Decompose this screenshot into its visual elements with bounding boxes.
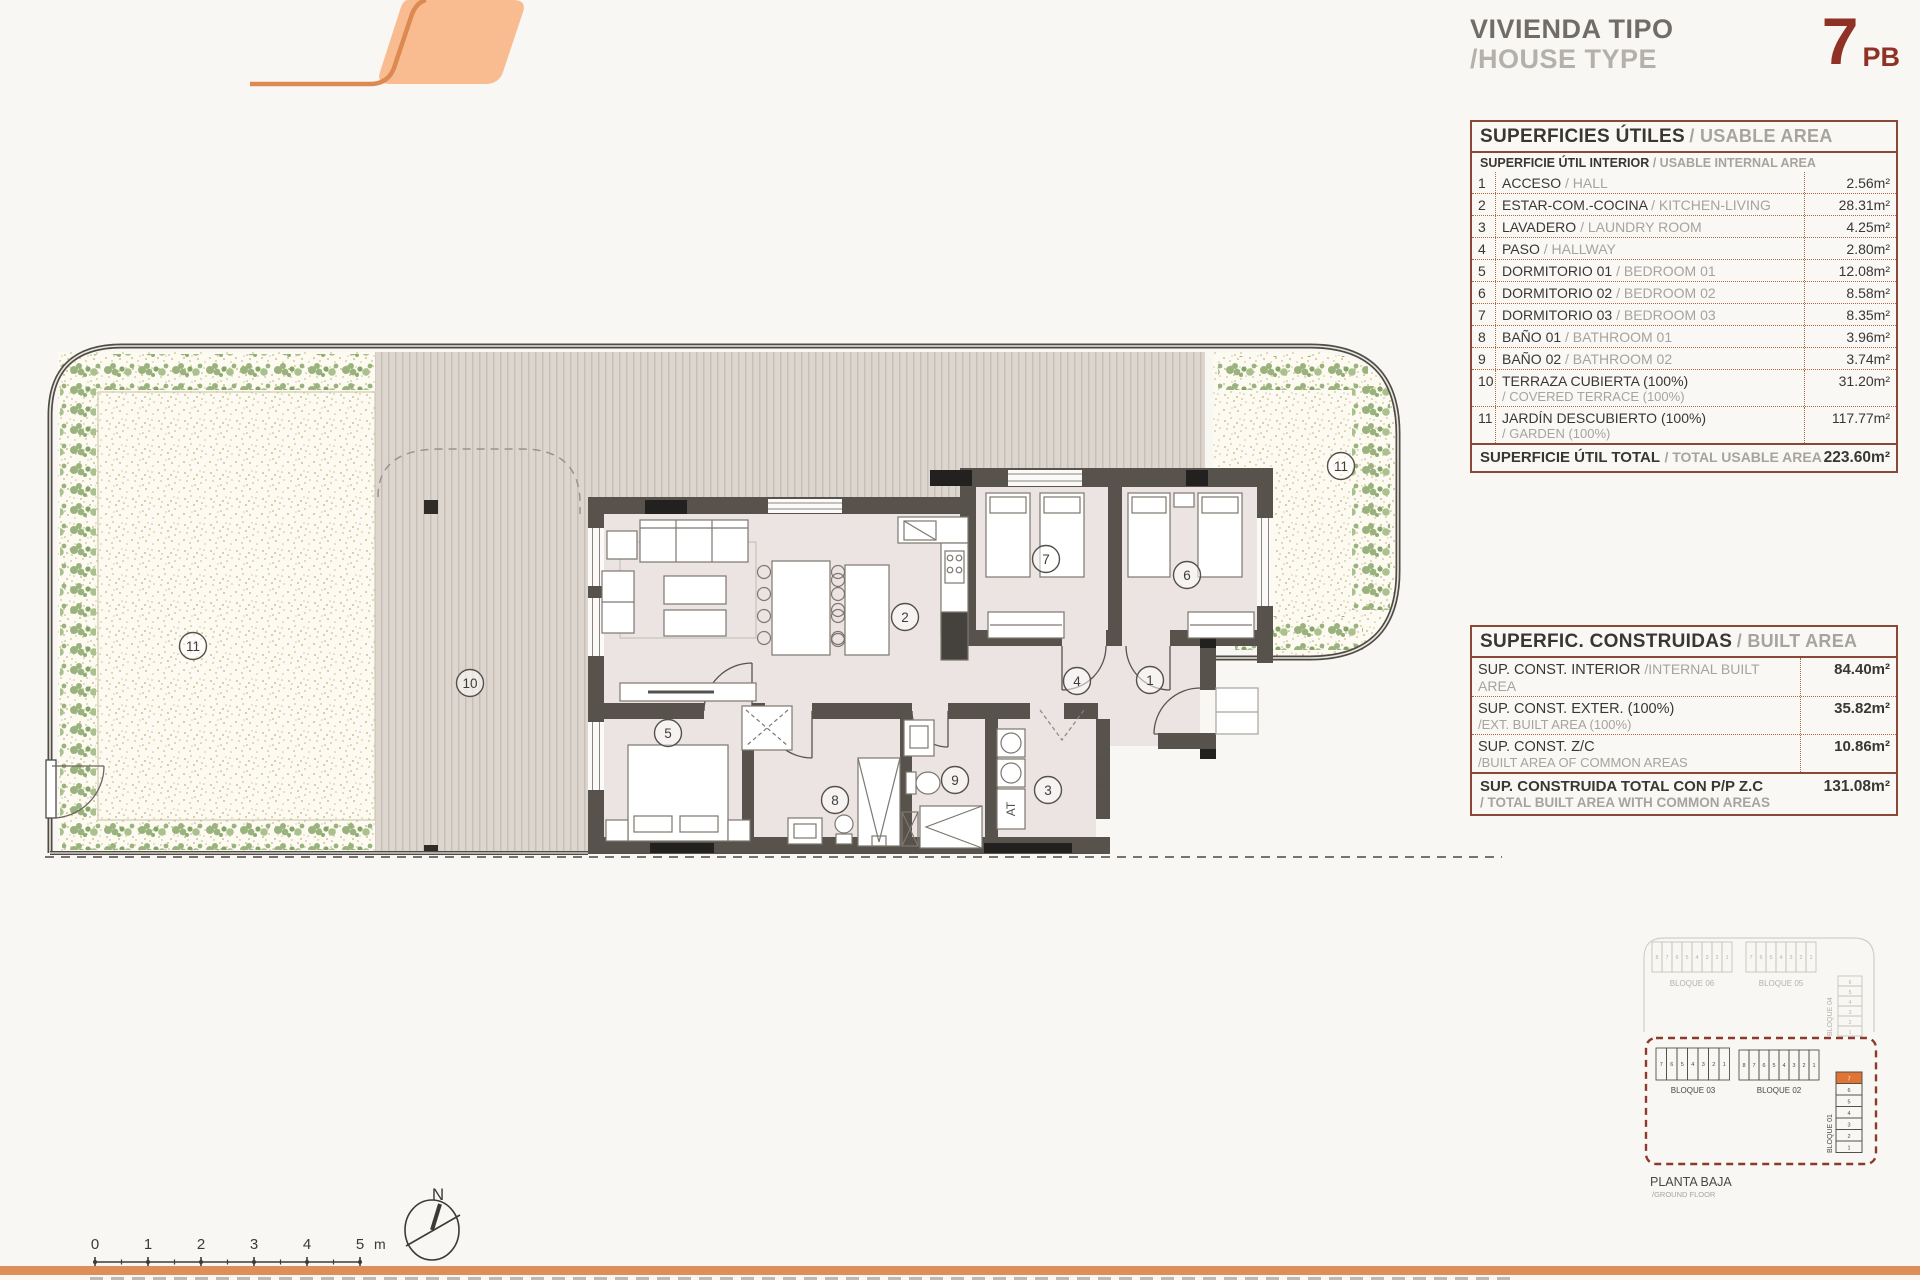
svg-text:4: 4 bbox=[303, 1236, 311, 1253]
svg-text:6: 6 bbox=[1675, 955, 1678, 961]
pillow bbox=[1202, 497, 1238, 513]
plan-sheet: AT 123456789101111 012345m N VIVIENDA TI… bbox=[0, 0, 1920, 1280]
svg-text:2: 2 bbox=[1715, 955, 1718, 961]
usable-row-7: 7DORMITORIO 03 / BEDROOM 038.35m² bbox=[1472, 304, 1896, 326]
svg-text:5: 5 bbox=[1772, 1063, 1775, 1069]
usable-row-5: 5DORMITORIO 01 / BEDROOM 0112.08m² bbox=[1472, 260, 1896, 282]
svg-text:4: 4 bbox=[1849, 1000, 1852, 1006]
coffee-table bbox=[664, 576, 726, 604]
svg-text:m: m bbox=[374, 1236, 386, 1252]
svg-text:6: 6 bbox=[1762, 1063, 1765, 1069]
svg-text:2: 2 bbox=[1712, 1062, 1715, 1068]
usable-row-11: 11JARDÍN DESCUBIERTO (100%)/ GARDEN (100… bbox=[1472, 407, 1896, 443]
svg-text:7: 7 bbox=[1042, 552, 1050, 567]
usable-subtitle-en: / USABLE INTERNAL AREA bbox=[1653, 156, 1816, 170]
svg-text:4: 4 bbox=[1691, 1062, 1694, 1068]
usable-area-table: SUPERFICIES ÚTILES / USABLE AREA SUPERFI… bbox=[1470, 120, 1898, 473]
sofa bbox=[640, 520, 748, 562]
built-total-label-en: / TOTAL BUILT AREA WITH COMMON AREAS bbox=[1480, 795, 1770, 810]
built-area-table-title: SUPERFIC. CONSTRUIDAS / BUILT AREA bbox=[1472, 627, 1896, 658]
toilet bbox=[916, 772, 940, 794]
svg-text:0: 0 bbox=[91, 1236, 99, 1253]
svg-text:BLOQUE 01: BLOQUE 01 bbox=[1827, 1114, 1834, 1153]
svg-text:4: 4 bbox=[1847, 1111, 1850, 1117]
toilet-tank bbox=[906, 772, 916, 794]
svg-text:2: 2 bbox=[1802, 1063, 1805, 1069]
svg-text:3: 3 bbox=[1792, 1063, 1795, 1069]
kitchen-island bbox=[845, 565, 889, 655]
svg-text:BLOQUE 04: BLOQUE 04 bbox=[1827, 997, 1834, 1036]
svg-text:5: 5 bbox=[1849, 990, 1852, 996]
built-area-table: SUPERFIC. CONSTRUIDAS / BUILT AREA SUP. … bbox=[1470, 625, 1898, 816]
coffee-table bbox=[664, 610, 726, 636]
built-row-2: SUP. CONST. Z/C/BUILT AREA OF COMMON ARE… bbox=[1472, 735, 1896, 772]
toilet bbox=[835, 815, 853, 833]
built-area-rows: SUP. CONST. INTERIOR /INTERNAL BUILT ARE… bbox=[1472, 658, 1896, 772]
room-label-4: 4 bbox=[1064, 668, 1091, 695]
garden-left bbox=[58, 352, 375, 853]
usable-row-9: 9BAÑO 02 / BATHROOM 023.74m² bbox=[1472, 348, 1896, 370]
room-label-1: 1 bbox=[1137, 667, 1164, 694]
nightstand bbox=[1174, 493, 1194, 507]
house-type-title-es: VIVIENDA TIPO bbox=[1470, 14, 1674, 44]
svg-text:/GROUND FLOOR: /GROUND FLOOR bbox=[1652, 1190, 1716, 1199]
usable-row-10: 10TERRAZA CUBIERTA (100%)/ COVERED TERRA… bbox=[1472, 370, 1896, 407]
svg-text:3: 3 bbox=[1789, 955, 1792, 961]
room-label-9: 9 bbox=[942, 767, 969, 794]
room-label-6: 6 bbox=[1174, 562, 1201, 589]
pillow bbox=[634, 816, 672, 832]
scale-bar: 012345m bbox=[91, 1236, 386, 1267]
svg-text:9: 9 bbox=[951, 773, 959, 788]
svg-text:5: 5 bbox=[1685, 955, 1688, 961]
built-total-value: 131.08m² bbox=[1824, 778, 1890, 810]
svg-text:8: 8 bbox=[1742, 1063, 1745, 1069]
dining-table bbox=[772, 561, 830, 655]
room-label-11: 11 bbox=[1328, 453, 1355, 480]
built-title-es: SUPERFIC. CONSTRUIDAS bbox=[1480, 631, 1732, 652]
svg-text:7: 7 bbox=[1847, 1077, 1850, 1083]
usable-total-value: 223.60m² bbox=[1824, 449, 1890, 467]
pillow bbox=[1132, 497, 1166, 513]
shrub-border-left bbox=[60, 358, 96, 840]
svg-text:4: 4 bbox=[1779, 955, 1782, 961]
room-label-11: 11 bbox=[180, 633, 207, 660]
svg-text:7: 7 bbox=[1660, 1062, 1663, 1068]
svg-text:8: 8 bbox=[1655, 955, 1658, 961]
svg-text:5: 5 bbox=[356, 1236, 364, 1253]
room-label-7: 7 bbox=[1033, 546, 1060, 573]
unit-number: 7 PB bbox=[1822, 8, 1900, 74]
usable-row-4: 4PASO / HALLWAY2.80m² bbox=[1472, 238, 1896, 260]
svg-text:6: 6 bbox=[1759, 955, 1762, 961]
usable-total-label-en: / TOTAL USABLE AREA bbox=[1664, 449, 1821, 465]
unit-number-value: 7 bbox=[1822, 8, 1859, 74]
usable-area-table-title: SUPERFICIES ÚTILES / USABLE AREA bbox=[1472, 122, 1896, 153]
shower bbox=[858, 758, 900, 846]
svg-text:1: 1 bbox=[144, 1236, 152, 1253]
usable-total-row: SUPERFICIE ÚTIL TOTAL / TOTAL USABLE ARE… bbox=[1472, 443, 1896, 471]
north-compass: N bbox=[405, 1185, 460, 1260]
usable-title-en: / USABLE AREA bbox=[1689, 126, 1832, 146]
pillow bbox=[680, 816, 718, 832]
brand-logo bbox=[250, 0, 524, 84]
footer-accent-band bbox=[0, 1266, 1920, 1275]
svg-text:10: 10 bbox=[462, 676, 477, 691]
built-title-en: / BUILT AREA bbox=[1737, 631, 1858, 651]
svg-text:2: 2 bbox=[1847, 1134, 1850, 1140]
house-type-title-en: /HOUSE TYPE bbox=[1470, 44, 1674, 74]
shrub-border-right bbox=[1352, 386, 1390, 610]
svg-text:3: 3 bbox=[250, 1236, 258, 1253]
built-row-1: SUP. CONST. EXTER. (100%)/EXT. BUILT ARE… bbox=[1472, 697, 1896, 735]
svg-text:5: 5 bbox=[664, 726, 672, 741]
svg-text:11: 11 bbox=[1334, 459, 1348, 474]
svg-text:7: 7 bbox=[1749, 955, 1752, 961]
svg-text:3: 3 bbox=[1849, 1010, 1852, 1016]
terrace-column bbox=[424, 500, 438, 514]
toilet-tank bbox=[836, 834, 852, 844]
north-label: N bbox=[432, 1185, 444, 1204]
svg-text:BLOQUE 03: BLOQUE 03 bbox=[1671, 1086, 1716, 1095]
shrub-border-top bbox=[94, 354, 375, 390]
pillow bbox=[990, 497, 1026, 513]
svg-text:6: 6 bbox=[1670, 1062, 1673, 1068]
svg-text:6: 6 bbox=[1847, 1088, 1850, 1094]
built-total-label-es: SUP. CONSTRUIDA TOTAL CON P/P Z.C bbox=[1480, 778, 1770, 795]
usable-total-label-es: SUPERFICIE ÚTIL TOTAL bbox=[1480, 449, 1660, 466]
shower bbox=[920, 806, 982, 848]
svg-text:2: 2 bbox=[1849, 1020, 1852, 1026]
svg-text:2: 2 bbox=[197, 1236, 205, 1253]
sheet-header: VIVIENDA TIPO /HOUSE TYPE 7 PB bbox=[1470, 14, 1900, 74]
built-total-row: SUP. CONSTRUIDA TOTAL CON P/P Z.C / TOTA… bbox=[1472, 772, 1896, 814]
usable-row-1: 1ACCESO / HALL2.56m² bbox=[1472, 172, 1896, 194]
usable-row-3: 3LAVADERO / LAUNDRY ROOM4.25m² bbox=[1472, 216, 1896, 238]
usable-row-8: 8BAÑO 01 / BATHROOM 013.96m² bbox=[1472, 326, 1896, 348]
svg-text:1: 1 bbox=[1809, 955, 1812, 961]
usable-row-2: 2ESTAR-COM.-COCINA / KITCHEN-LIVING28.31… bbox=[1472, 194, 1896, 216]
room-label-3: 3 bbox=[1035, 777, 1062, 804]
svg-text:4: 4 bbox=[1695, 955, 1698, 961]
svg-text:3: 3 bbox=[1702, 1062, 1705, 1068]
svg-text:5: 5 bbox=[1769, 955, 1772, 961]
usable-subtitle-es: SUPERFICIE ÚTIL INTERIOR bbox=[1480, 156, 1649, 170]
svg-text:6: 6 bbox=[1183, 568, 1191, 583]
svg-text:1: 1 bbox=[1849, 1030, 1852, 1036]
svg-text:2: 2 bbox=[901, 610, 909, 625]
svg-text:3: 3 bbox=[1847, 1123, 1850, 1129]
pillow bbox=[1044, 497, 1080, 513]
built-row-0: SUP. CONST. INTERIOR /INTERNAL BUILT ARE… bbox=[1472, 658, 1896, 697]
site-key-plan: 87654321BLOQUE 067654321BLOQUE 05654321B… bbox=[1642, 932, 1882, 1208]
usable-row-6: 6DORMITORIO 02 / BEDROOM 028.58m² bbox=[1472, 282, 1896, 304]
svg-text:3: 3 bbox=[1044, 783, 1052, 798]
shrub-border-top-right bbox=[1218, 356, 1368, 390]
room-label-10: 10 bbox=[457, 670, 484, 697]
nightstand bbox=[606, 820, 628, 841]
kitchen-cabinet bbox=[941, 612, 968, 660]
unit-number-suffix: PB bbox=[1862, 42, 1900, 73]
svg-text:2: 2 bbox=[1799, 955, 1802, 961]
svg-text:1: 1 bbox=[1847, 1146, 1850, 1152]
nightstand bbox=[728, 820, 750, 841]
svg-text:3: 3 bbox=[1705, 955, 1708, 961]
sink bbox=[788, 818, 822, 844]
room-label-5: 5 bbox=[655, 720, 682, 747]
svg-text:1: 1 bbox=[1723, 1062, 1726, 1068]
svg-text:5: 5 bbox=[1681, 1062, 1684, 1068]
armchair bbox=[607, 531, 637, 559]
svg-text:8: 8 bbox=[831, 793, 839, 808]
svg-text:4: 4 bbox=[1782, 1063, 1785, 1069]
svg-text:BLOQUE 05: BLOQUE 05 bbox=[1759, 979, 1804, 988]
svg-text:4: 4 bbox=[1073, 674, 1081, 689]
svg-text:11: 11 bbox=[186, 639, 200, 654]
svg-text:7: 7 bbox=[1665, 955, 1668, 961]
svg-text:BLOQUE 02: BLOQUE 02 bbox=[1757, 1086, 1802, 1095]
svg-text:1: 1 bbox=[1725, 955, 1728, 961]
svg-text:1: 1 bbox=[1812, 1063, 1815, 1069]
svg-text:7: 7 bbox=[1752, 1063, 1755, 1069]
svg-text:PLANTA BAJA: PLANTA BAJA bbox=[1650, 1175, 1732, 1189]
room-label-2: 2 bbox=[892, 604, 919, 631]
usable-area-rows: 1ACCESO / HALL2.56m²2ESTAR-COM.-COCINA /… bbox=[1472, 172, 1896, 443]
usable-area-table-subtitle: SUPERFICIE ÚTIL INTERIOR / USABLE INTERN… bbox=[1472, 153, 1896, 172]
room-label-8: 8 bbox=[822, 787, 849, 814]
usable-title-es: SUPERFICIES ÚTILES bbox=[1480, 126, 1685, 147]
svg-text:BLOQUE 06: BLOQUE 06 bbox=[1670, 979, 1715, 988]
svg-text:6: 6 bbox=[1849, 980, 1852, 986]
entry-porch bbox=[1216, 688, 1258, 734]
svg-text:1: 1 bbox=[1146, 673, 1154, 688]
svg-text:5: 5 bbox=[1847, 1100, 1850, 1106]
shrub-border-bottom bbox=[62, 820, 375, 850]
at-label: AT bbox=[1004, 801, 1018, 816]
